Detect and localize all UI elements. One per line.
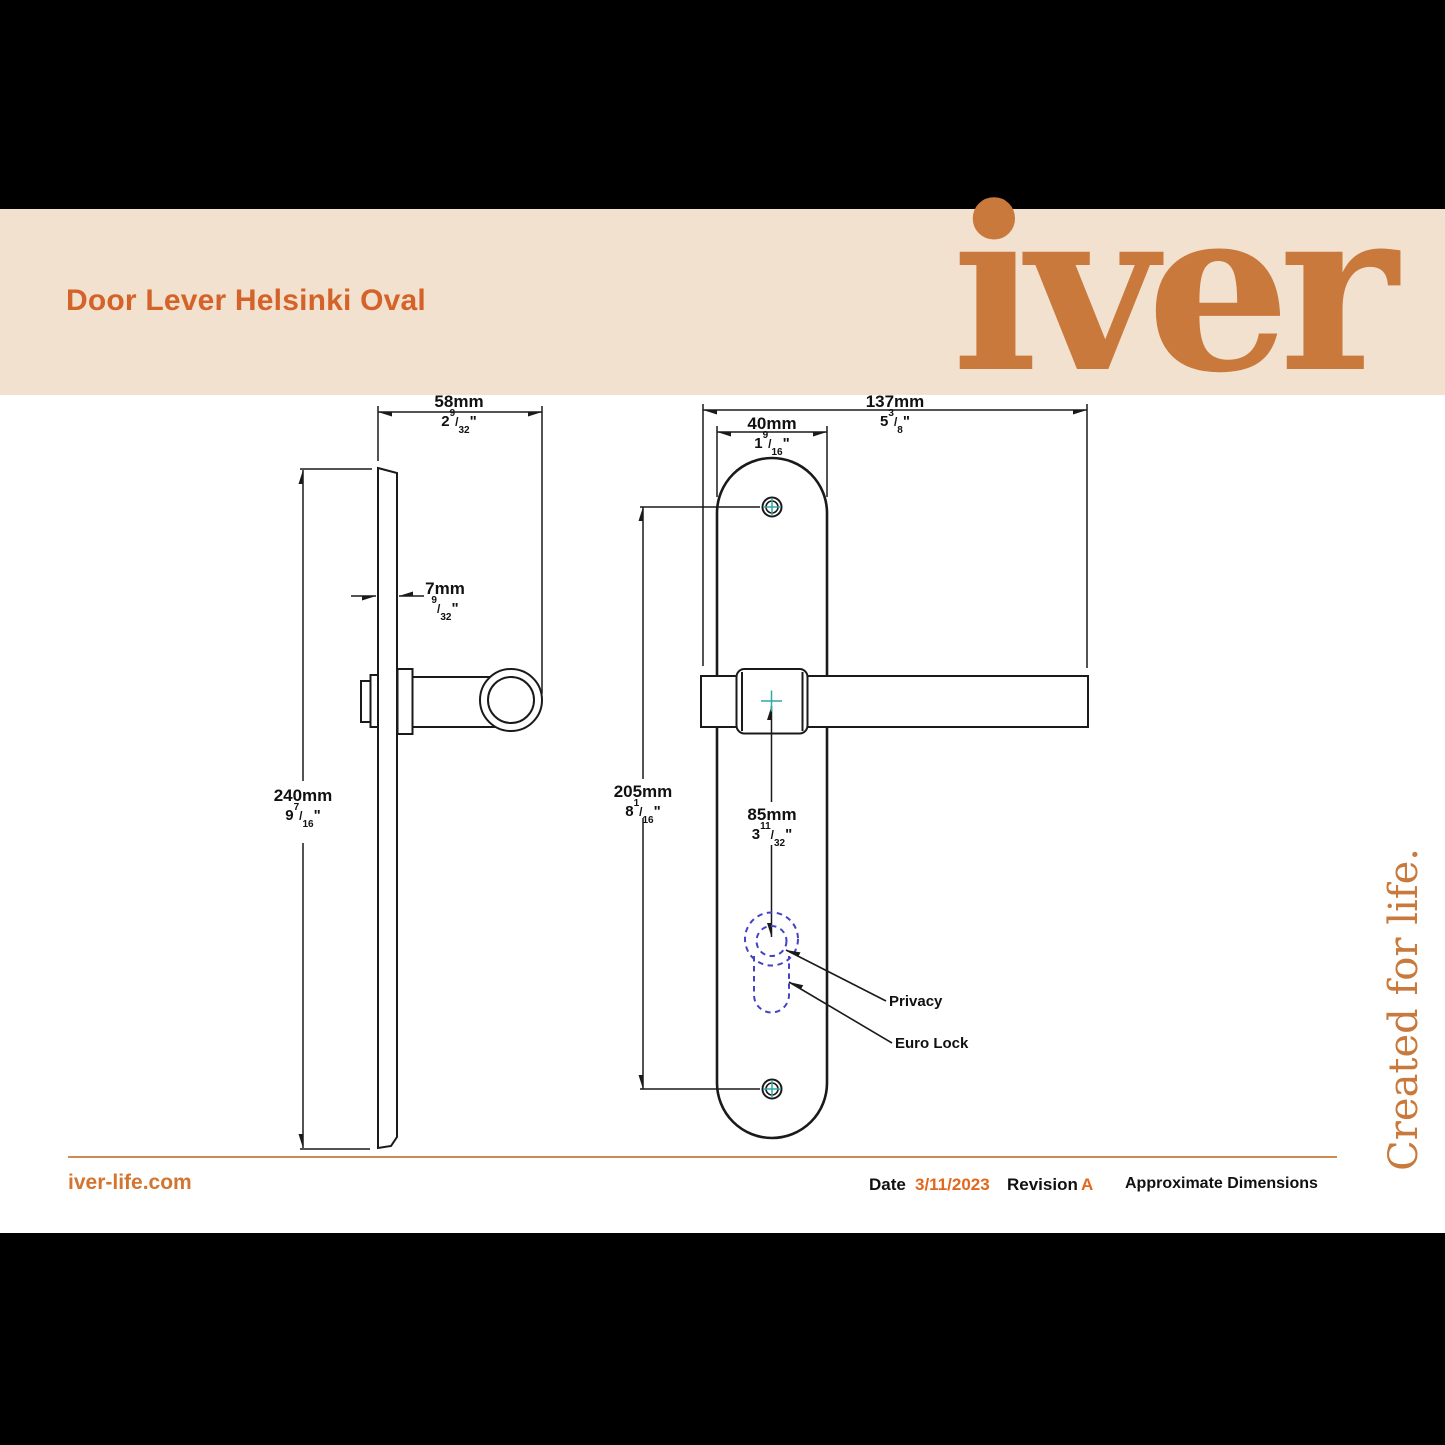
- website-link: iver-life.com: [68, 1171, 192, 1195]
- fraction-whole: 8: [625, 803, 633, 820]
- revision-label: Revision: [1007, 1175, 1078, 1195]
- fraction-numerator: 9: [431, 595, 437, 606]
- fraction-whole: 1: [754, 435, 762, 452]
- date-label: Date: [869, 1175, 906, 1195]
- callout-euro-lock: Euro Lock: [895, 1035, 968, 1052]
- fraction-slash: /: [455, 415, 458, 429]
- dim-overall-width-metric: 137mm: [835, 393, 955, 412]
- dim-screw-centres: 205mm 81/16": [583, 783, 703, 823]
- fraction-slash: /: [768, 437, 771, 451]
- dim-plate-width-metric: 40mm: [712, 415, 832, 434]
- fraction-numerator: 9: [763, 430, 769, 441]
- dim-plate-thickness: 7mm 9/32": [385, 580, 505, 620]
- inch-mark: ": [451, 600, 458, 617]
- dim-side-width: 58mm 29/32": [399, 393, 519, 433]
- fraction-denominator: 16: [643, 815, 654, 826]
- dim-plate-width: 40mm 19/16": [712, 415, 832, 455]
- dim-overall-width-imperial: 53/8": [835, 412, 955, 433]
- dim-plate-width-imperial: 19/16": [712, 434, 832, 455]
- brand-logo: iver: [952, 178, 1422, 404]
- footer-rule: [68, 1156, 1337, 1158]
- inch-mark: ": [470, 413, 477, 430]
- dim-lever-to-keyhole: 85mm 311/32": [712, 806, 832, 846]
- dim-side-width-metric: 58mm: [399, 393, 519, 412]
- side-spindle: [361, 675, 378, 727]
- fraction-slash: /: [639, 805, 642, 819]
- fraction-denominator: 16: [772, 447, 783, 458]
- dim-line-58mm: [378, 406, 542, 694]
- side-backplate: [378, 468, 397, 1148]
- dim-overall-width: 137mm 53/8": [835, 393, 955, 433]
- inch-mark: ": [654, 803, 661, 820]
- fraction-slash: /: [299, 809, 302, 823]
- fraction-denominator: 32: [774, 838, 785, 849]
- fraction-numerator: 3: [888, 408, 894, 419]
- callout-privacy: Privacy: [889, 993, 942, 1010]
- fraction-denominator: 8: [897, 425, 903, 436]
- fraction-denominator: 32: [459, 425, 470, 436]
- inch-mark: ": [903, 413, 910, 430]
- fraction-numerator: 1: [634, 798, 640, 809]
- dim-plate-thickness-imperial: 9/32": [385, 599, 505, 620]
- dim-plate-height: 240mm 97/16": [243, 787, 363, 827]
- dim-side-width-imperial: 29/32": [399, 412, 519, 433]
- dim-plate-height-metric: 240mm: [243, 787, 363, 806]
- dim-plate-height-imperial: 97/16": [243, 806, 363, 827]
- dim-screw-centres-imperial: 81/16": [583, 802, 703, 823]
- inch-mark: ": [314, 807, 321, 824]
- fraction-whole: 3: [752, 826, 760, 843]
- revision-value: A: [1081, 1175, 1093, 1195]
- dim-plate-thickness-metric: 7mm: [385, 580, 505, 599]
- dim-lever-to-keyhole-imperial: 311/32": [712, 825, 832, 846]
- dim-lever-to-keyhole-metric: 85mm: [712, 806, 832, 825]
- front-view-drawing: [640, 404, 1088, 1138]
- fraction-numerator: 11: [760, 821, 771, 832]
- fraction-numerator: 9: [450, 408, 456, 419]
- date-value: 3/11/2023: [915, 1175, 990, 1195]
- spec-sheet: Door Lever Helsinki Oval iver Created fo…: [0, 0, 1445, 1445]
- fraction-whole: 9: [285, 807, 293, 824]
- side-view-drawing: [300, 406, 542, 1149]
- fraction-denominator: 16: [303, 819, 314, 830]
- approximate-dimensions-note: Approximate Dimensions: [1125, 1175, 1318, 1193]
- side-lever: [398, 669, 543, 734]
- inch-mark: ": [783, 435, 790, 452]
- dim-screw-centres-metric: 205mm: [583, 783, 703, 802]
- fraction-denominator: 32: [440, 612, 451, 623]
- fraction-numerator: 7: [294, 802, 300, 813]
- fraction-whole: 2: [441, 413, 449, 430]
- inch-mark: ": [785, 826, 792, 843]
